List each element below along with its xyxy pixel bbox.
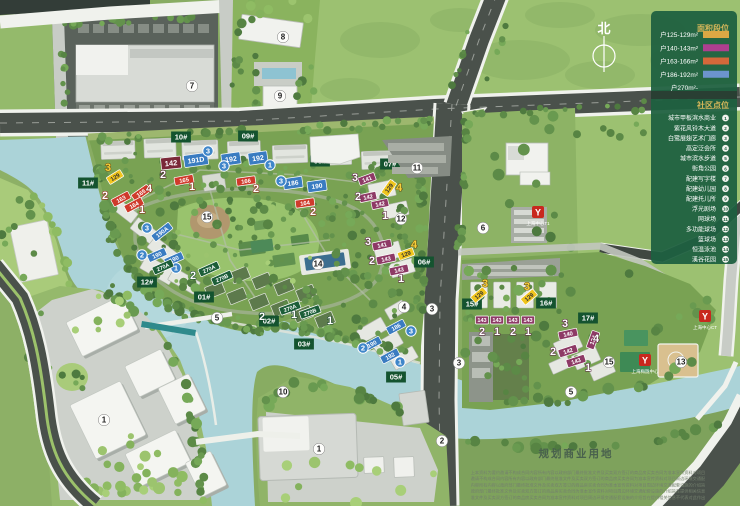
svg-text:高定泛会所: 高定泛会所 <box>686 145 716 153</box>
svg-text:4: 4 <box>411 239 418 251</box>
svg-text:11: 11 <box>413 164 422 173</box>
svg-text:8: 8 <box>724 187 727 192</box>
svg-text:户140-143m²: 户140-143m² <box>660 43 699 52</box>
svg-text:户186-192m²: 户186-192m² <box>660 70 699 79</box>
svg-text:内容所有内容以政府部门最终批准文件及买卖双方签订的商品房买卖: 内容所有内容以政府部门最终批准文件及买卖双方签订的商品房买卖合同为准本宣传资料对… <box>471 481 706 488</box>
svg-text:11: 11 <box>723 217 728 222</box>
svg-text:2: 2 <box>355 191 361 203</box>
svg-text:户270m²-: 户270m²- <box>671 83 698 92</box>
svg-text:143: 143 <box>477 318 486 324</box>
svg-text:5: 5 <box>569 388 574 397</box>
svg-text:篮球场: 篮球场 <box>698 235 716 243</box>
svg-text:12: 12 <box>723 227 729 232</box>
svg-text:9: 9 <box>278 92 283 101</box>
svg-text:7: 7 <box>724 176 727 181</box>
svg-text:143: 143 <box>508 318 517 324</box>
svg-text:10: 10 <box>279 388 288 397</box>
svg-text:3: 3 <box>279 177 283 186</box>
svg-text:16#: 16# <box>540 299 553 308</box>
svg-text:1: 1 <box>268 161 272 170</box>
svg-text:3: 3 <box>430 305 435 314</box>
svg-text:2: 2 <box>310 206 316 218</box>
svg-text:15: 15 <box>723 257 729 262</box>
svg-text:3: 3 <box>206 147 210 156</box>
svg-text:2: 2 <box>102 190 108 202</box>
svg-text:03#: 03# <box>298 340 311 349</box>
svg-text:1: 1 <box>174 264 178 273</box>
svg-text:准文件及买卖双方签订的商品房买卖合同为准本宣传资料对项目周边: 准文件及买卖双方签订的商品房买卖合同为准本宣传资料对项目周边环境交通配套设施的介… <box>471 494 706 501</box>
svg-text:2: 2 <box>440 437 445 446</box>
svg-text:2: 2 <box>253 183 259 195</box>
svg-text:12#: 12# <box>141 278 154 287</box>
svg-text:11#: 11# <box>82 179 95 188</box>
svg-text:3: 3 <box>724 136 727 141</box>
svg-text:城市甲板滨水商业: 城市甲板滨水商业 <box>668 114 716 122</box>
svg-text:6: 6 <box>481 224 486 233</box>
svg-text:紫花风铃木大道: 紫花风铃木大道 <box>674 124 716 132</box>
svg-text:浮光剧场: 浮光剧场 <box>692 205 716 213</box>
svg-text:3: 3 <box>409 327 413 336</box>
svg-text:多功能球场: 多功能球场 <box>686 225 716 233</box>
svg-text:2: 2 <box>259 311 265 323</box>
svg-text:2: 2 <box>190 270 196 282</box>
svg-text:配建写字楼: 配建写字楼 <box>686 175 716 183</box>
svg-text:城市滨水步道: 城市滨水步道 <box>680 155 716 163</box>
svg-text:上海中心T1: 上海中心T1 <box>526 220 550 227</box>
svg-text:上海中心CT: 上海中心CT <box>693 324 717 331</box>
svg-text:09#: 09# <box>242 132 255 141</box>
svg-text:5: 5 <box>215 314 220 323</box>
svg-text:3: 3 <box>352 172 358 184</box>
svg-text:1: 1 <box>317 445 322 454</box>
svg-text:1: 1 <box>189 181 195 193</box>
svg-text:上海梅陇中心: 上海梅陇中心 <box>632 368 659 375</box>
svg-text:1: 1 <box>382 210 388 222</box>
svg-text:邀请不构成合同内容所有内容以政府部门最终批准文件及买卖双方签: 邀请不构成合同内容所有内容以政府部门最终批准文件及买卖双方签订的商品房买卖合同为… <box>471 475 706 482</box>
svg-text:6: 6 <box>724 166 727 171</box>
svg-text:2: 2 <box>140 251 144 260</box>
svg-text:1: 1 <box>525 326 531 338</box>
svg-text:4: 4 <box>146 183 153 195</box>
svg-text:恒温泳池: 恒温泳池 <box>692 246 716 254</box>
svg-text:2: 2 <box>361 344 365 353</box>
svg-text:2: 2 <box>550 346 556 358</box>
svg-text:14: 14 <box>314 260 323 269</box>
svg-text:15: 15 <box>605 358 614 367</box>
svg-text:15: 15 <box>203 213 212 222</box>
svg-text:街角公园: 街角公园 <box>692 165 716 173</box>
svg-text:3: 3 <box>562 318 568 330</box>
svg-text:1: 1 <box>291 309 297 321</box>
svg-text:06#: 06# <box>418 258 431 267</box>
svg-text:14: 14 <box>723 247 729 252</box>
svg-text:北: 北 <box>597 21 610 36</box>
svg-text:2: 2 <box>479 326 485 338</box>
svg-text:3: 3 <box>145 224 149 233</box>
svg-text:社区点位: 社区点位 <box>696 100 729 110</box>
svg-text:9: 9 <box>724 197 727 202</box>
svg-text:Y: Y <box>642 356 648 366</box>
svg-text:户163-166m²: 户163-166m² <box>660 57 699 66</box>
svg-text:3: 3 <box>222 162 226 171</box>
svg-text:4: 4 <box>396 182 403 194</box>
svg-text:1: 1 <box>139 204 145 216</box>
svg-text:白鹭展翅艺术门廊: 白鹭展翅艺术门廊 <box>668 134 716 142</box>
svg-text:溪谷花园: 溪谷花园 <box>692 256 716 264</box>
svg-text:政府部门最终批准文件及买卖双方签订的商品房买卖合同为准本宣传: 政府部门最终批准文件及买卖双方签订的商品房买卖合同为准本宣传资料对项目周边环境交… <box>471 488 706 495</box>
svg-text:01#: 01# <box>198 293 211 302</box>
svg-text:规划商业用地: 规划商业用地 <box>539 447 614 460</box>
svg-text:1: 1 <box>494 326 500 338</box>
svg-text:网球场: 网球场 <box>698 215 716 223</box>
svg-text:4: 4 <box>593 333 600 345</box>
svg-text:4: 4 <box>402 303 407 312</box>
svg-text:143: 143 <box>492 318 501 324</box>
svg-text:17#: 17# <box>582 314 595 323</box>
svg-text:Y: Y <box>535 208 541 218</box>
svg-text:1: 1 <box>724 116 727 121</box>
svg-text:1: 1 <box>398 273 404 285</box>
svg-text:配建托儿所: 配建托儿所 <box>686 195 716 203</box>
svg-text:3: 3 <box>365 236 371 248</box>
svg-text:3: 3 <box>482 278 488 290</box>
svg-text:5: 5 <box>724 156 727 161</box>
svg-text:12: 12 <box>397 215 406 224</box>
svg-text:10#: 10# <box>175 133 188 142</box>
svg-text:13: 13 <box>723 237 729 242</box>
svg-text:2: 2 <box>724 126 727 131</box>
svg-text:2: 2 <box>369 255 375 267</box>
svg-text:3: 3 <box>524 281 530 293</box>
svg-text:2: 2 <box>510 326 516 338</box>
svg-text:4: 4 <box>724 146 727 151</box>
svg-text:户125-129m²: 户125-129m² <box>660 30 699 39</box>
svg-text:上本资料为要约邀请不构成合同内容所有内容以政府部门最终批准文: 上本资料为要约邀请不构成合同内容所有内容以政府部门最终批准文件及买卖双方签订的商… <box>471 469 706 476</box>
svg-text:1: 1 <box>102 416 107 425</box>
svg-text:7: 7 <box>190 82 195 91</box>
svg-text:1: 1 <box>585 362 591 374</box>
svg-text:10: 10 <box>723 207 729 212</box>
svg-text:配建幼儿园: 配建幼儿园 <box>686 185 716 193</box>
svg-text:142: 142 <box>164 158 177 168</box>
svg-text:1: 1 <box>398 358 402 367</box>
svg-text:3: 3 <box>457 359 462 368</box>
svg-text:8: 8 <box>281 33 286 42</box>
svg-text:143: 143 <box>523 318 532 324</box>
svg-text:13: 13 <box>677 358 686 367</box>
svg-text:05#: 05# <box>390 373 403 382</box>
svg-text:3: 3 <box>105 162 111 174</box>
svg-text:Y: Y <box>702 312 708 322</box>
svg-text:2: 2 <box>160 169 166 181</box>
svg-text:1: 1 <box>327 315 333 327</box>
